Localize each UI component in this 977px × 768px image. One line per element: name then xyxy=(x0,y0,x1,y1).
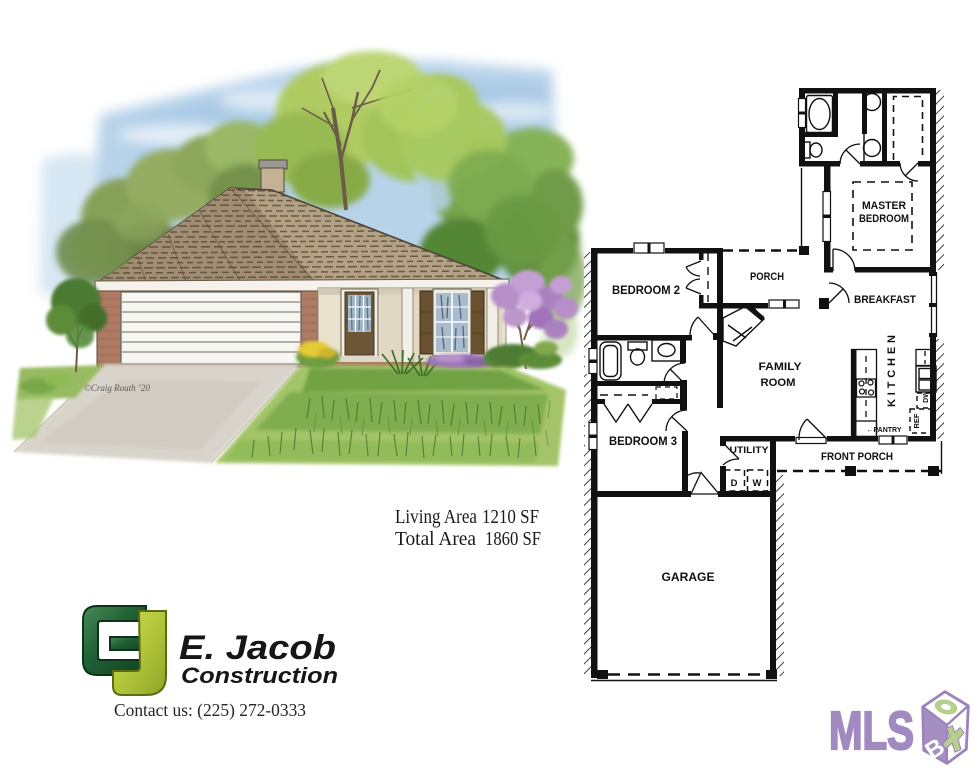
svg-text:MLS: MLS xyxy=(829,701,914,761)
svg-text:BEDROOM 2: BEDROOM 2 xyxy=(612,285,680,297)
svg-text:Construction: Construction xyxy=(181,663,338,688)
svg-text:UTILITY: UTILITY xyxy=(730,445,770,456)
svg-text:GARAGE: GARAGE xyxy=(662,572,715,584)
svg-text:REF: REF xyxy=(912,413,921,428)
svg-text:PORCH: PORCH xyxy=(750,271,784,283)
svg-text:1210 SF: 1210 SF xyxy=(482,506,539,528)
svg-text:E. Jacob: E. Jacob xyxy=(179,629,336,667)
svg-text:BEDROOM: BEDROOM xyxy=(859,213,909,225)
svg-text:BEDROOM 3: BEDROOM 3 xyxy=(609,436,677,448)
svg-text:D: D xyxy=(731,478,738,489)
svg-text:©Craig Routh ’20: ©Craig Routh ’20 xyxy=(84,383,150,393)
svg-text:MASTER: MASTER xyxy=(862,200,906,212)
svg-text:DW: DW xyxy=(923,391,930,403)
svg-text:Living Area: Living Area xyxy=(395,506,477,528)
svg-text:1860 SF: 1860 SF xyxy=(485,528,541,550)
svg-text:FRONT PORCH: FRONT PORCH xyxy=(821,451,893,463)
svg-text:←PANTRY: ←PANTRY xyxy=(867,427,902,434)
svg-text:BREAKFAST: BREAKFAST xyxy=(854,294,916,306)
svg-text:FAMILY: FAMILY xyxy=(759,361,803,373)
svg-text:W: W xyxy=(753,478,762,489)
svg-text:Contact us: (225) 272-0333: Contact us: (225) 272-0333 xyxy=(114,700,306,721)
svg-text:Total Area: Total Area xyxy=(395,528,476,550)
svg-text:ROOM: ROOM xyxy=(761,377,796,389)
